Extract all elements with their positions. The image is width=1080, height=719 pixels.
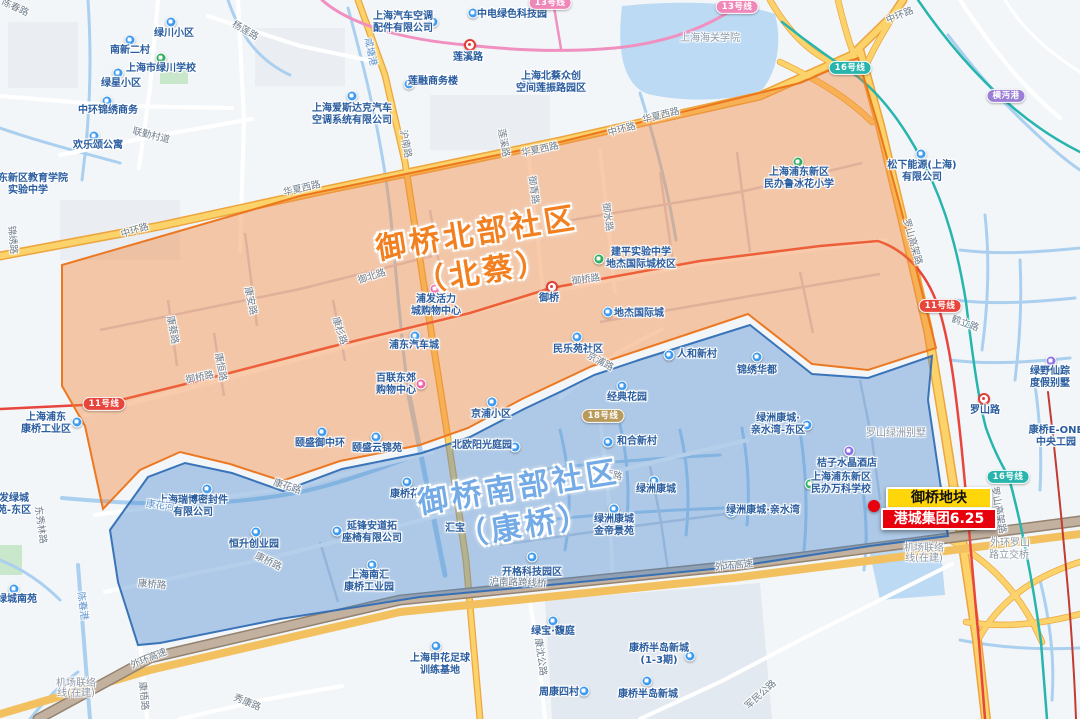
metro-station-icon[interactable]	[546, 281, 558, 293]
poi-label[interactable]: 绿洲康城·亲水湾	[726, 506, 800, 516]
poi-label[interactable]: 民办鲁冰花小学	[764, 180, 834, 190]
poi-label[interactable]: 配件有限公司	[373, 24, 433, 34]
building-icon[interactable]	[664, 350, 675, 361]
school-icon[interactable]	[156, 53, 167, 64]
building-icon[interactable]	[617, 381, 628, 392]
poi-label[interactable]: 松下能源(上海)	[887, 161, 956, 171]
school-icon[interactable]	[594, 254, 605, 265]
poi-label[interactable]: 锦绣华都	[737, 366, 777, 376]
building-icon[interactable]	[367, 560, 378, 571]
poi-label[interactable]: 康桥E-ONE	[1029, 426, 1080, 436]
poi-label[interactable]: 有限公司	[173, 508, 213, 518]
water-label: 康花河	[145, 499, 175, 512]
building-icon[interactable]	[347, 91, 358, 102]
poi-label[interactable]: 康桥工业园	[344, 583, 394, 593]
road-label: 康桥路	[253, 551, 283, 572]
building-icon[interactable]	[603, 307, 614, 318]
poi-label[interactable]: 延锋安道拓	[347, 522, 397, 532]
road-label: 中环路	[120, 222, 150, 239]
metro-line-badge: 13号线	[716, 0, 759, 14]
poi-label[interactable]: 京浦小区	[471, 410, 511, 420]
road-label: 陈春路	[0, 0, 30, 18]
poi-label[interactable]: 上海市绿川学校	[126, 64, 196, 74]
poi-label[interactable]: 颐盛云锦苑	[352, 444, 402, 454]
building-icon[interactable]	[916, 149, 927, 160]
poi-label[interactable]: 上海北蔡众创	[521, 72, 581, 82]
poi-label[interactable]: 绿城南苑	[0, 595, 37, 605]
poi-label[interactable]: 浦东汽车城	[389, 341, 439, 351]
road-label: 康桥路	[137, 579, 166, 590]
building-icon[interactable]	[9, 584, 20, 595]
poi-label[interactable]: 中环锦绣商务	[78, 106, 138, 116]
metro-line-badge: 16号线	[829, 61, 872, 75]
poi-label[interactable]: 中电绿色科技园	[477, 10, 547, 20]
road-label: 华夏西路	[520, 141, 559, 158]
road-label: 沪南路	[398, 129, 412, 159]
poi-label[interactable]: 有限公司	[902, 173, 942, 183]
station-label[interactable]: 罗山路	[970, 406, 1000, 416]
building-icon[interactable]	[431, 641, 442, 652]
road-label: 御青路	[526, 175, 539, 205]
poi-label[interactable]: 建平实验中学	[611, 248, 671, 258]
road-label: 康杉路	[330, 316, 348, 346]
metro-station-icon[interactable]	[978, 393, 990, 405]
poi-label[interactable]: 绿洲康城	[636, 485, 676, 495]
metro-line-badge: 横沔港	[986, 89, 1025, 103]
poi-label[interactable]: 上海浦东新区	[769, 168, 829, 178]
poi-label[interactable]: 周康四村	[539, 688, 579, 698]
road-label: 御桥路	[185, 370, 215, 385]
poi-label[interactable]: 颐盛御中环	[295, 439, 345, 449]
metro-line-badge: 11号线	[919, 299, 962, 313]
poi-label[interactable]: 上海浦东	[26, 413, 66, 423]
poi-label[interactable]: 地杰国际城校区	[606, 260, 676, 270]
water-label: 陈春港	[75, 591, 88, 621]
poi-label[interactable]: 百联东郊	[376, 374, 416, 384]
building-icon[interactable]	[202, 484, 213, 495]
road-label: 沪南路跨线桥	[489, 577, 546, 588]
poi-label[interactable]: 座椅有限公司	[342, 534, 402, 544]
road-label: 杨莲路	[230, 20, 259, 42]
building-icon[interactable]	[113, 68, 124, 79]
poi-label[interactable]: 中央工园	[1036, 438, 1076, 448]
poi-label[interactable]: 经典花园	[607, 393, 647, 403]
water-label: 咸塘港	[362, 37, 377, 67]
mall-icon[interactable]	[416, 379, 427, 390]
road-label: 锦绣路	[6, 225, 18, 254]
building-icon[interactable]	[579, 686, 590, 697]
poi-label[interactable]: 空间莲振路园区	[516, 84, 586, 94]
building-icon[interactable]	[642, 676, 653, 687]
map-viewport[interactable]: 南新二村绿星小区绿川小区上海市绿川学校中环锦绣商务欢乐颂公寓浦东新区教育学院实验…	[0, 0, 1080, 719]
poi-label[interactable]: 地杰国际城	[614, 309, 664, 319]
poi-label[interactable]: 桔子水晶酒店	[817, 459, 877, 469]
hotel-icon[interactable]	[844, 446, 855, 457]
road-label: 华夏西路	[282, 180, 321, 198]
gray-label: 线(在建)	[905, 554, 943, 564]
metro-station-icon[interactable]	[464, 39, 476, 51]
poi-label[interactable]: 空调系统有限公司	[312, 116, 392, 126]
school-icon[interactable]	[793, 157, 804, 168]
building-icon[interactable]	[487, 397, 498, 408]
poi-label[interactable]: 康桥工业区	[21, 425, 71, 435]
poi-label[interactable]: 南新二村	[110, 46, 150, 56]
poi-label[interactable]: 绿宝·馥庭	[531, 627, 575, 637]
gray-label: 线(在建)	[57, 689, 95, 699]
road-label: 东秀林路	[33, 506, 48, 545]
poi-label[interactable]: 和合新村	[617, 437, 657, 447]
poi-label[interactable]: 训练基地	[420, 666, 460, 676]
road-label: 康安路	[242, 286, 257, 316]
poi-label[interactable]: 绿星小区	[101, 79, 141, 89]
road-label: 康花路	[272, 478, 302, 496]
building-icon[interactable]	[548, 616, 559, 627]
building-icon[interactable]	[527, 552, 538, 563]
poi-label[interactable]: 康桥半岛新城	[618, 690, 678, 700]
road-label: 秀康路	[232, 693, 262, 712]
gray-label: 外环罗山	[990, 539, 1030, 549]
poi-label[interactable]: 上海申花足球	[410, 654, 470, 664]
metro-line-badge: 13号线	[529, 0, 572, 10]
poi-label[interactable]: 发绿城	[0, 494, 29, 504]
building-icon[interactable]	[72, 417, 83, 428]
poi-label[interactable]: 绿野仙踪	[1030, 367, 1070, 377]
road-label: 外环高速	[130, 647, 169, 670]
road-label: 康蔡路	[165, 315, 179, 345]
road-label: 鹤立路	[950, 315, 980, 334]
poi-label[interactable]: 浦东新区教育学院	[0, 174, 68, 184]
poi-label[interactable]: 上海南汇	[349, 571, 389, 581]
poi-label[interactable]: (1-3期)	[640, 656, 677, 666]
villa-icon[interactable]	[1046, 356, 1057, 367]
building-icon[interactable]	[251, 527, 262, 538]
building-icon[interactable]	[603, 437, 614, 448]
metro-line-badge: 16号线	[987, 470, 1030, 484]
gray-label: 路立交桥	[989, 551, 1029, 561]
building-icon[interactable]	[332, 526, 343, 537]
road-label: 莲溪路	[496, 128, 510, 158]
poi-label[interactable]: 罗山绿洲别墅	[866, 429, 926, 439]
poi-label[interactable]: 城购物中心	[411, 307, 461, 317]
target-location-dot	[868, 500, 880, 512]
building-icon[interactable]	[752, 352, 763, 363]
developer-badge: 港城集团6.25	[881, 508, 997, 530]
metro-line-badge: 11号线	[83, 397, 126, 411]
building-icon[interactable]	[125, 35, 136, 46]
poi-label[interactable]: 上海爱斯达克汽车	[312, 104, 392, 114]
building-icon[interactable]	[317, 427, 328, 438]
road-label: 康沈公路	[533, 638, 548, 677]
building-icon[interactable]	[166, 17, 177, 28]
road-label: 康梧路	[137, 681, 149, 710]
poi-label[interactable]: 欢乐颂公寓	[73, 141, 123, 151]
poi-label[interactable]: 上海海关学院	[680, 34, 740, 44]
poi-label[interactable]: 度假别墅	[1030, 379, 1070, 389]
metro-line-badge: 18号线	[582, 409, 625, 423]
road-label: 御水路	[600, 202, 613, 232]
station-label[interactable]: 莲溪路	[453, 53, 483, 63]
road-label: 中环路	[885, 6, 915, 25]
road-label: 军民公路	[744, 679, 779, 711]
poi-label[interactable]: 北欧阳光庭园	[452, 441, 512, 451]
road-label: 外环高速	[715, 559, 754, 572]
poi-label[interactable]: 绿川小区	[154, 29, 194, 39]
poi-label[interactable]: 购物中心	[376, 386, 416, 396]
road-label: 罗山高架路	[901, 218, 923, 266]
road-label: 华夏西路	[641, 107, 680, 125]
poi-label[interactable]: 绿洲康城·	[756, 414, 800, 424]
poi-label[interactable]: 莲融商务楼	[408, 77, 458, 87]
station-label[interactable]: 御桥	[539, 294, 559, 304]
poi-label[interactable]: 民办万科学校	[811, 485, 871, 495]
poi-label[interactable]: 恒升创业园	[229, 540, 279, 550]
poi-label[interactable]: 人和新村	[677, 350, 717, 360]
building-icon[interactable]	[371, 432, 382, 443]
region-label: 御桥南部社区（康桥）	[415, 453, 629, 562]
poi-label[interactable]: 苑-东区	[0, 506, 31, 516]
building-icon[interactable]	[402, 477, 413, 488]
poi-label[interactable]: 上海浦东新区	[811, 473, 871, 483]
poi-label[interactable]: 康桥半岛新城	[629, 644, 689, 654]
poi-label[interactable]: 亲水湾-东区	[751, 426, 805, 436]
plot-name-badge: 御桥地块	[886, 487, 992, 509]
poi-label[interactable]: 上海汽车空调	[373, 12, 433, 22]
road-label: 中环路	[607, 122, 637, 139]
poi-label[interactable]: 实验中学	[8, 186, 48, 196]
building-icon[interactable]	[572, 332, 583, 343]
road-label: 联勤村道	[131, 127, 170, 145]
